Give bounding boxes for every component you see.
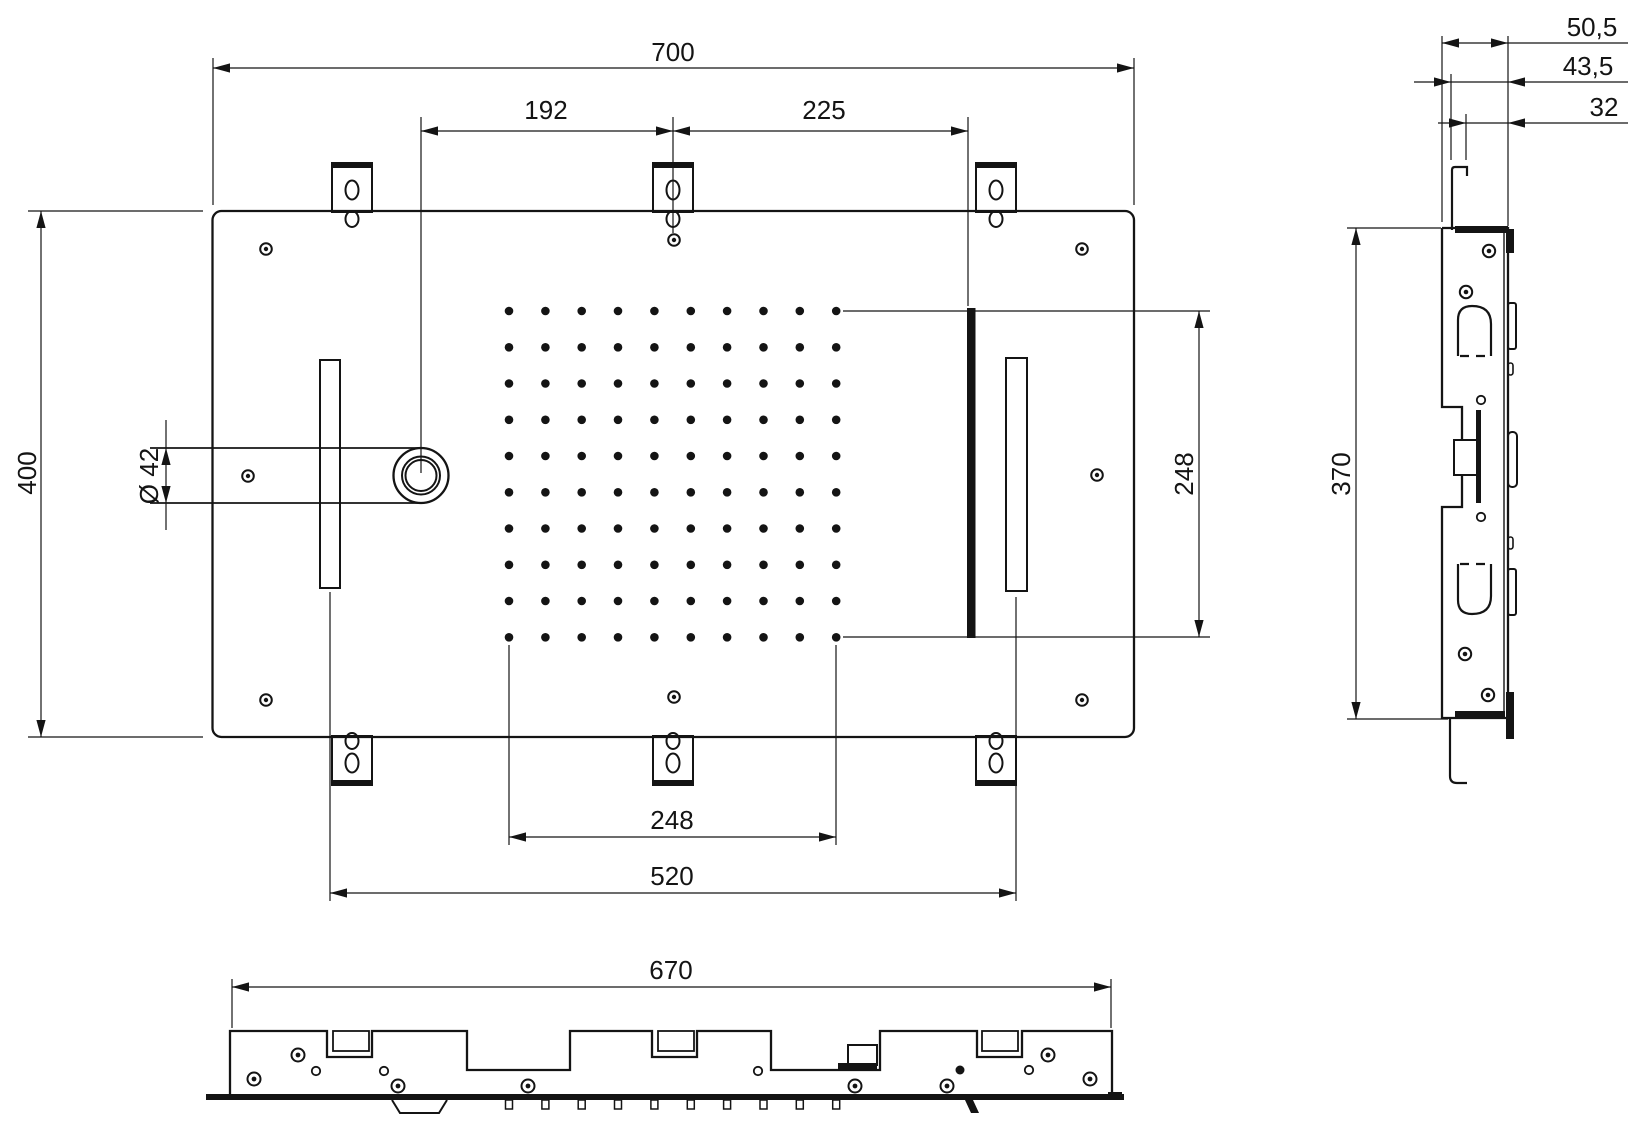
nozzle-grid-element <box>614 561 623 570</box>
waterfall-slot-bar <box>967 308 976 638</box>
nozzle-grid-element <box>650 561 659 570</box>
dimension-arrows-element <box>1351 702 1360 719</box>
dimension-lines <box>28 36 1628 1028</box>
nozzle-grid-element <box>832 597 841 606</box>
dim-bottom-width: 670 <box>649 955 692 985</box>
mounting-tabs-element <box>653 736 693 785</box>
mounting-tabs-element <box>652 780 694 786</box>
nozzle-grid-element <box>723 488 732 497</box>
nozzle-grid-element <box>796 633 805 642</box>
nozzle-grid-element <box>687 379 696 388</box>
nozzle-grid-element <box>832 416 841 425</box>
technical-drawing-sheet: 700 192 225 400 Ø 42 248 248 520 670 50,… <box>0 0 1650 1137</box>
dimension-arrows-element <box>36 211 45 228</box>
dimension-arrows-element <box>1194 620 1203 637</box>
bracket-lip <box>333 1031 369 1051</box>
bottom-hook <box>1450 719 1467 783</box>
plan-screw-holes-element <box>672 695 676 699</box>
nozzle-grid-element <box>687 597 696 606</box>
keyhole-arch-lower <box>1458 564 1491 614</box>
bottom-view-nozzle-ticks-element <box>687 1100 694 1109</box>
dimension-arrows-element <box>1491 38 1508 47</box>
bottom-view-holes-element <box>1046 1053 1051 1058</box>
nozzle-grid-element <box>505 452 514 461</box>
ceiling-clip-small <box>1508 363 1513 375</box>
dimension-arrows <box>36 38 1525 991</box>
nozzle-grid-element <box>614 452 623 461</box>
nozzle-grid-element <box>759 416 768 425</box>
dim-side-flange-depth: 43,5 <box>1563 51 1614 81</box>
nozzle-grid-element <box>832 343 841 352</box>
nozzle-grid-element <box>541 307 550 316</box>
nozzle-grid-element <box>541 343 550 352</box>
mounting-tabs-element <box>332 736 372 785</box>
mounting-tabs <box>331 162 1017 786</box>
nozzle-grid-element <box>796 416 805 425</box>
bottom-view-holes-element <box>380 1067 388 1075</box>
nozzle-grid-element <box>832 379 841 388</box>
dimension-arrows-element <box>509 832 526 841</box>
dimension-arrows-element <box>330 888 347 897</box>
nozzle-grid <box>505 307 841 642</box>
nozzle-grid-element <box>505 379 514 388</box>
dimension-arrows-element <box>421 126 438 135</box>
dim-nozzle-field-height: 248 <box>1169 452 1199 495</box>
nozzle-grid-element <box>723 379 732 388</box>
bottom-view-holes-element <box>526 1084 531 1089</box>
ceiling-clip <box>1508 303 1516 349</box>
side-bottom-corner <box>1506 692 1514 739</box>
dim-side-hook-depth: 32 <box>1590 92 1619 122</box>
nozzle-grid-element <box>796 307 805 316</box>
nozzle-grid-element <box>505 488 514 497</box>
dim-inlet-diameter: Ø 42 <box>134 448 164 504</box>
dim-nozzle-field-width: 248 <box>650 805 693 835</box>
nozzle-grid-element <box>650 416 659 425</box>
dimension-arrows-element <box>673 126 690 135</box>
nozzle-grid-element <box>832 633 841 642</box>
plan-screw-holes-element <box>1080 247 1084 251</box>
bottom-view-nozzle-ticks-element <box>796 1100 803 1109</box>
mounting-tabs-element <box>346 181 359 200</box>
mounting-tabs-element <box>346 754 359 773</box>
bottom-view-nozzle-ticks-element <box>578 1100 585 1109</box>
dim-inlet-to-center: 192 <box>524 95 567 125</box>
dimension-arrows-element <box>1442 38 1459 47</box>
side-view <box>1442 167 1517 783</box>
nozzle-grid-element <box>541 416 550 425</box>
mounting-tabs-element <box>975 780 1017 786</box>
slider-block <box>1454 440 1478 475</box>
dimension-arrows-element <box>213 63 230 72</box>
step-block-fill <box>838 1063 877 1070</box>
nozzle-grid-element <box>505 524 514 533</box>
dimension-arrows-element <box>36 720 45 737</box>
dimension-arrows-element <box>656 126 673 135</box>
nozzle-grid-element <box>614 524 623 533</box>
bottom-view-holes-element <box>1088 1077 1093 1082</box>
nozzle-grid-element <box>723 307 732 316</box>
dimension-arrows-element <box>232 982 249 991</box>
nozzle-grid-element <box>614 379 623 388</box>
mounting-tabs-element <box>332 163 372 212</box>
dimension-arrows-element <box>819 832 836 841</box>
nozzle-grid-element <box>650 597 659 606</box>
bottom-view <box>206 1031 1124 1113</box>
drawing-canvas: 700 192 225 400 Ø 42 248 248 520 670 50,… <box>0 0 1650 1137</box>
nozzle-grid-element <box>541 524 550 533</box>
dim-plan-height: 400 <box>12 451 42 494</box>
nozzle-grid-element <box>687 343 696 352</box>
slider-dark-bar <box>1476 410 1481 503</box>
plan-screw-holes-element <box>672 238 676 242</box>
nozzle-grid-element <box>541 452 550 461</box>
nozzle-grid-element <box>759 379 768 388</box>
dimension-arrows-element <box>1449 118 1466 127</box>
bottom-view-holes-element <box>754 1067 762 1075</box>
nozzle-grid-element <box>796 488 805 497</box>
nozzle-grid-element <box>577 524 586 533</box>
mounting-tabs-element <box>331 162 373 168</box>
nozzle-grid-element <box>723 452 732 461</box>
base-plate-end <box>1108 1092 1122 1100</box>
nozzle-grid-element <box>687 416 696 425</box>
nozzle-grid-element <box>759 307 768 316</box>
nozzle-grid-element <box>650 524 659 533</box>
bottom-view-holes-element <box>853 1084 858 1089</box>
nozzle-grid-element <box>614 488 623 497</box>
nozzle-grid-element <box>505 633 514 642</box>
nozzle-grid-element <box>650 379 659 388</box>
dim-slot-spacing: 520 <box>650 861 693 891</box>
nozzle-grid-element <box>796 343 805 352</box>
plan-screw-holes-element <box>246 474 250 478</box>
plan-screw-holes-element <box>264 247 268 251</box>
mounting-tabs-element <box>667 754 680 773</box>
nozzle-grid-element <box>577 561 586 570</box>
nozzle-grid-element <box>650 307 659 316</box>
nozzle-grid-element <box>577 307 586 316</box>
nozzle-grid-element <box>577 452 586 461</box>
nozzle-grid-element <box>832 561 841 570</box>
bottom-view-nozzle-ticks-element <box>615 1100 622 1109</box>
left-slot <box>320 360 340 588</box>
bottom-view-holes-element <box>252 1077 257 1082</box>
nozzle-grid-element <box>687 452 696 461</box>
nozzle-grid-element <box>723 343 732 352</box>
bottom-view-nozzle-ticks <box>506 1100 840 1109</box>
bottom-view-holes-element <box>945 1084 950 1089</box>
nozzle-grid-element <box>614 307 623 316</box>
keyhole-arch-upper <box>1458 306 1491 356</box>
nozzle-grid-element <box>541 561 550 570</box>
bottom-view-holes-element <box>396 1084 401 1089</box>
nozzle-grid-element <box>541 633 550 642</box>
bottom-view-nozzle-ticks-element <box>760 1100 767 1109</box>
nozzle-grid-element <box>796 452 805 461</box>
side-view-holes-element <box>1464 290 1469 295</box>
nozzle-grid-element <box>541 488 550 497</box>
side-top-corner <box>1506 229 1514 253</box>
mounting-tabs-element <box>975 162 1017 168</box>
dimension-labels: 700 192 225 400 Ø 42 248 248 520 670 50,… <box>12 12 1618 985</box>
nozzle-grid-element <box>723 416 732 425</box>
nozzle-grid-element <box>505 597 514 606</box>
dimension-arrows-element <box>1117 63 1134 72</box>
nozzle-grid-element <box>505 416 514 425</box>
dimension-arrows-element <box>951 126 968 135</box>
dimension-arrows-element <box>1508 118 1525 127</box>
dimension-arrows-element <box>1508 77 1525 86</box>
nozzle-grid-element <box>759 561 768 570</box>
nozzle-grid-element <box>796 379 805 388</box>
right-slot <box>1006 358 1027 591</box>
nozzle-grid-element <box>650 452 659 461</box>
dim-side-total-depth: 50,5 <box>1567 12 1618 42</box>
dimension-arrows-element <box>1351 228 1360 245</box>
bottom-view-nozzle-ticks-element <box>542 1100 549 1109</box>
nozzle-grid-element <box>723 597 732 606</box>
plan-view <box>150 162 1134 786</box>
bottom-view-holes <box>248 1049 1097 1093</box>
dimension-arrows-element <box>999 888 1016 897</box>
dim-center-to-waterfall: 225 <box>802 95 845 125</box>
nozzle-grid-element <box>614 633 623 642</box>
side-view-holes-element <box>1487 249 1492 254</box>
nozzle-grid-element <box>614 343 623 352</box>
nozzle-grid-element <box>505 307 514 316</box>
nozzle-grid-element <box>505 343 514 352</box>
nozzle-grid-element <box>577 633 586 642</box>
step-block <box>848 1045 877 1065</box>
nozzle-grid-element <box>723 633 732 642</box>
side-bottom-edge <box>1455 711 1505 719</box>
nozzle-grid-element <box>505 561 514 570</box>
nozzle-grid-element <box>541 379 550 388</box>
nozzle-grid-element <box>577 416 586 425</box>
plan-plate-outline <box>213 211 1135 737</box>
nozzle-grid-element <box>687 307 696 316</box>
nozzle-grid-element <box>759 452 768 461</box>
nozzle-grid-element <box>650 488 659 497</box>
nozzle-grid-element <box>687 524 696 533</box>
outlet-bump <box>392 1100 447 1113</box>
ceiling-clip-small <box>1508 537 1513 549</box>
nozzle-grid-element <box>650 343 659 352</box>
bottom-view-holes-element <box>956 1066 965 1075</box>
bracket-lip <box>658 1031 694 1051</box>
nozzle-grid-element <box>832 524 841 533</box>
nozzle-grid-element <box>759 633 768 642</box>
nozzle-grid-element <box>832 488 841 497</box>
bottom-profile-outline <box>230 1031 1112 1095</box>
drain-tick <box>965 1100 979 1113</box>
nozzle-grid-element <box>650 633 659 642</box>
nozzle-grid-element <box>759 343 768 352</box>
bottom-view-nozzle-ticks-element <box>506 1100 513 1109</box>
side-view-holes-element <box>1477 513 1485 521</box>
nozzle-grid-element <box>687 633 696 642</box>
nozzle-grid-element <box>541 597 550 606</box>
nozzle-grid-element <box>796 597 805 606</box>
plan-screw-holes-element <box>1095 473 1099 477</box>
nozzle-grid-element <box>577 597 586 606</box>
top-hook <box>1452 167 1467 230</box>
nozzle-grid-element <box>723 524 732 533</box>
dimension-arrows-element <box>1094 982 1111 991</box>
nozzle-grid-element <box>759 524 768 533</box>
mounting-tabs-element <box>331 780 373 786</box>
dimension-arrows-element <box>1194 311 1203 328</box>
ceiling-clip <box>1508 569 1516 615</box>
mounting-tabs-element <box>990 181 1003 200</box>
mounting-tabs-element <box>976 163 1016 212</box>
bottom-view-holes-element <box>1025 1066 1033 1074</box>
bottom-view-holes-element <box>312 1067 320 1075</box>
bottom-view-nozzle-ticks-element <box>724 1100 731 1109</box>
mounting-tabs-element <box>990 211 1003 227</box>
nozzle-grid-element <box>832 307 841 316</box>
ceiling-clip-mid <box>1508 432 1517 487</box>
nozzle-grid-element <box>614 597 623 606</box>
nozzle-grid-element <box>577 379 586 388</box>
dim-plan-width: 700 <box>651 37 694 67</box>
nozzle-grid-element <box>832 452 841 461</box>
nozzle-grid-element <box>796 524 805 533</box>
bottom-view-nozzle-ticks-element <box>651 1100 658 1109</box>
nozzle-grid-element <box>796 561 805 570</box>
nozzle-grid-element <box>687 488 696 497</box>
bottom-view-holes-element <box>296 1053 301 1058</box>
mounting-tabs-element <box>976 736 1016 785</box>
nozzle-grid-element <box>577 488 586 497</box>
side-view-holes-element <box>1477 396 1485 404</box>
mounting-tabs-element <box>346 211 359 227</box>
base-plate-bar <box>206 1094 1124 1100</box>
nozzle-grid-element <box>723 561 732 570</box>
side-view-holes-element <box>1463 652 1468 657</box>
plan-screw-holes-element <box>264 698 268 702</box>
nozzle-grid-element <box>614 416 623 425</box>
nozzle-grid-element <box>577 343 586 352</box>
plan-screw-holes-element <box>1080 698 1084 702</box>
side-top-edge <box>1455 226 1508 233</box>
nozzle-grid-element <box>759 597 768 606</box>
nozzle-grid-element <box>687 561 696 570</box>
dim-side-bracket-height: 370 <box>1326 452 1356 495</box>
side-bracket-outline <box>1442 228 1508 718</box>
mounting-tabs-element <box>990 754 1003 773</box>
bracket-lip <box>982 1031 1018 1051</box>
side-view-holes-element <box>1486 693 1491 698</box>
bottom-view-nozzle-ticks-element <box>833 1100 840 1109</box>
nozzle-grid-element <box>759 488 768 497</box>
